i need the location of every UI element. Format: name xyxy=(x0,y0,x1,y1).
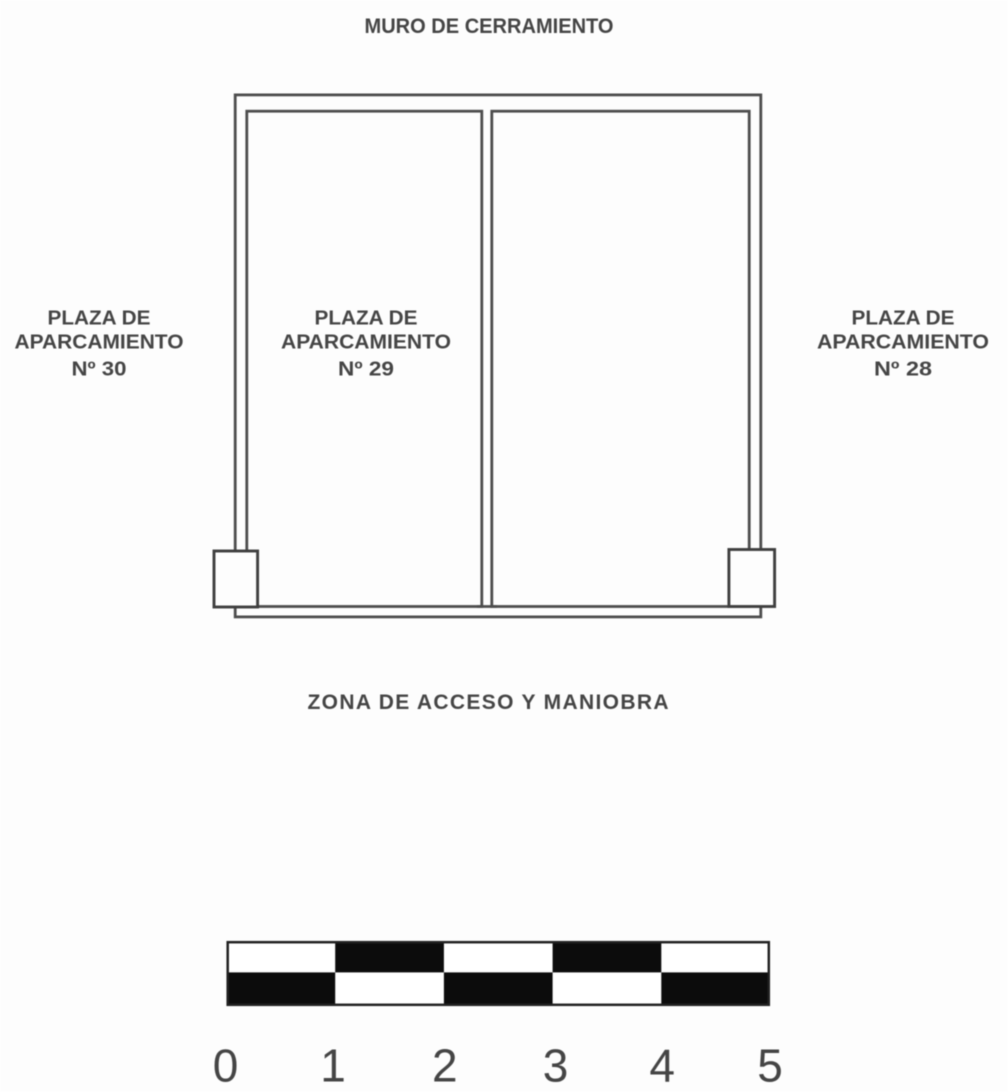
svg-text:0: 0 xyxy=(213,1040,239,1092)
svg-text:ZONA DE ACCESO Y MANIOBRA: ZONA DE ACCESO Y MANIOBRA xyxy=(308,691,669,714)
svg-text:Nº 30: Nº 30 xyxy=(72,358,127,380)
svg-text:4: 4 xyxy=(649,1040,675,1092)
svg-text:5: 5 xyxy=(757,1040,783,1092)
svg-text:3: 3 xyxy=(543,1040,569,1092)
svg-text:PLAZA DE: PLAZA DE xyxy=(48,308,151,330)
svg-text:Nº 28: Nº 28 xyxy=(874,358,932,380)
svg-text:1: 1 xyxy=(320,1040,346,1092)
svg-text:2: 2 xyxy=(432,1040,458,1092)
svg-text:APARCAMIENTO: APARCAMIENTO xyxy=(281,332,451,354)
svg-text:APARCAMIENTO: APARCAMIENTO xyxy=(15,332,184,354)
svg-text:Nº 29: Nº 29 xyxy=(338,358,394,380)
svg-text:APARCAMIENTO: APARCAMIENTO xyxy=(817,332,989,354)
svg-text:PLAZA DE: PLAZA DE xyxy=(852,308,955,330)
svg-text:MURO DE CERRAMIENTO: MURO DE CERRAMIENTO xyxy=(365,15,614,38)
svg-text:PLAZA DE: PLAZA DE xyxy=(315,308,418,330)
